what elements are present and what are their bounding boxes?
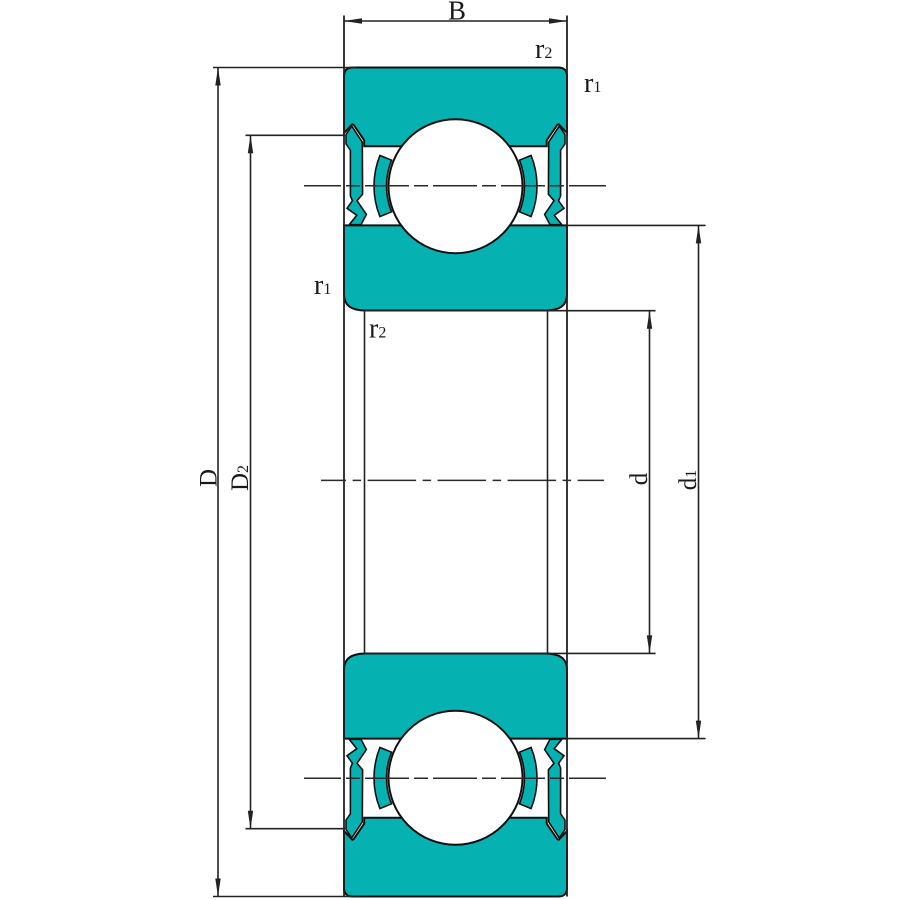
svg-text:D: D — [196, 469, 223, 487]
svg-text:d: d — [626, 472, 653, 485]
svg-text:B: B — [448, 0, 466, 26]
